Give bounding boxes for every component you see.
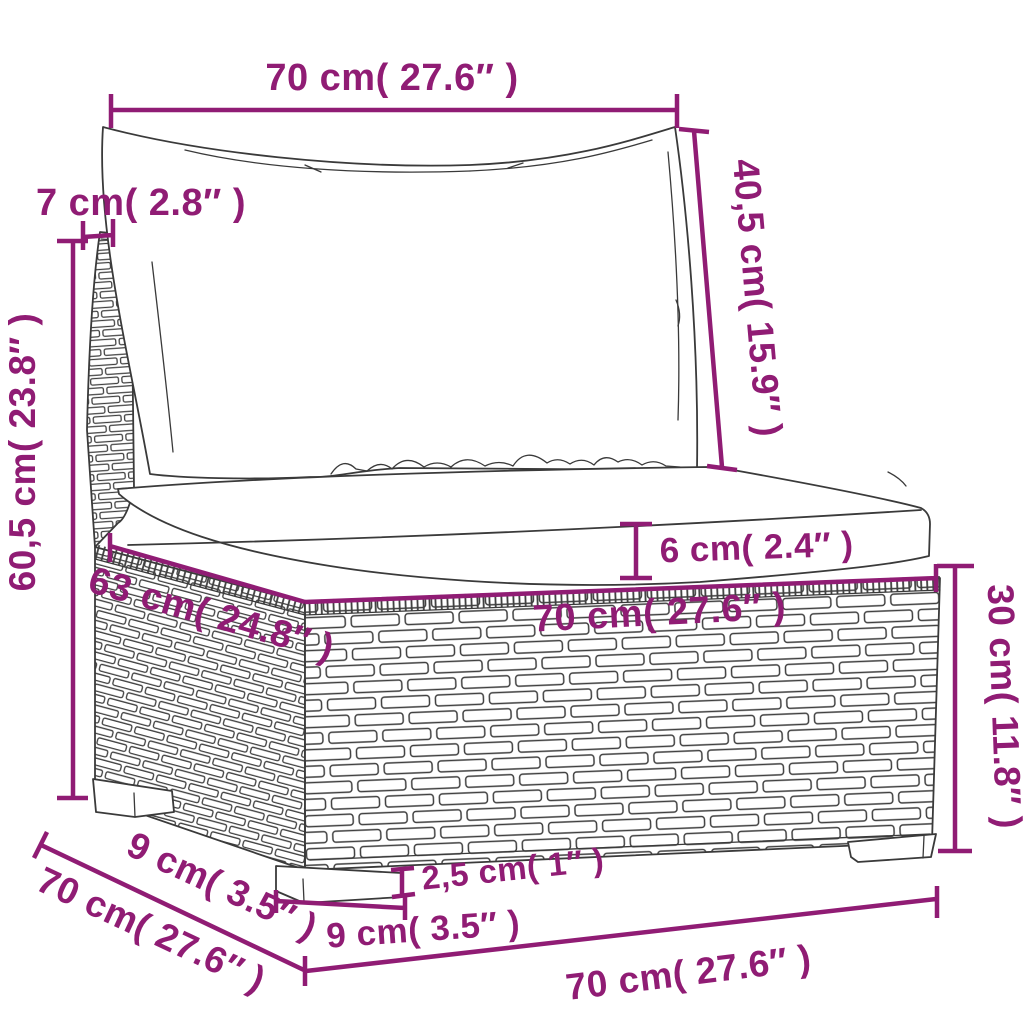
dim-top-width-line [111, 94, 677, 128]
label-total-height: 60,5 cm( 23.8″ ) [2, 313, 43, 592]
diagram-canvas: 70 cm( 27.6″ ) 40,5 cm( 15.9″ ) 7 cm( 2.… [0, 0, 1024, 1024]
label-bottom-front-width: 70 cm( 27.6″ ) [563, 937, 813, 1008]
label-back-panel-width: 7 cm( 2.8″ ) [36, 182, 246, 224]
back-cushion [102, 127, 697, 478]
dim-total-height-line [57, 241, 88, 798]
sofa-illustration [87, 127, 940, 903]
label-back-height: 40,5 cm( 15.9″ ) [725, 157, 790, 438]
dim-base-height-line [937, 566, 974, 851]
label-base-height: 30 cm( 11.8″ ) [980, 584, 1024, 830]
label-top-width: 70 cm( 27.6″ ) [265, 57, 518, 99]
label-cushion-thickness: 6 cm( 2.4″ ) [659, 525, 854, 571]
seat-cushion-wrinkle [888, 472, 906, 486]
dimension-diagram-page: 70 cm( 27.6″ ) 40,5 cm( 15.9″ ) 7 cm( 2.… [0, 0, 1024, 1024]
